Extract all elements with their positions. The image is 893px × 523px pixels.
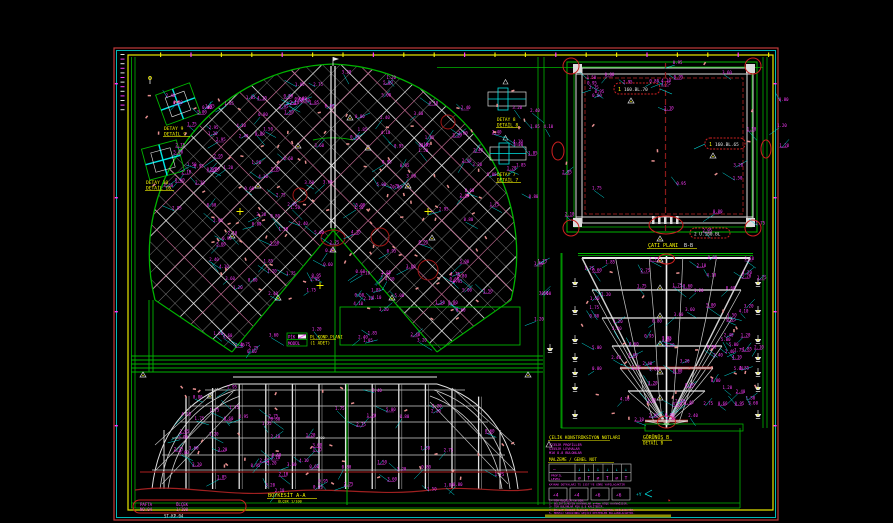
svg-text:1.85: 1.85 <box>528 150 538 155</box>
notes-heading-2: MALZEME / GENEL NOT <box>549 457 597 462</box>
svg-text:3.20: 3.20 <box>680 358 690 363</box>
svg-text:4.10: 4.10 <box>219 264 229 269</box>
svg-text:3.20: 3.20 <box>452 132 462 137</box>
svg-text:2.95: 2.95 <box>216 137 226 142</box>
svg-text:2.10: 2.10 <box>431 408 441 413</box>
svg-text:1.85: 1.85 <box>647 397 657 402</box>
svg-text:1.20: 1.20 <box>779 143 789 148</box>
svg-text:1.85: 1.85 <box>368 330 378 335</box>
svg-text:1.75: 1.75 <box>210 408 220 413</box>
svg-text:5.00: 5.00 <box>462 287 472 292</box>
svg-text:3.60: 3.60 <box>674 312 684 317</box>
section-b-line2: DETAİL B <box>643 441 664 446</box>
svg-text:1.20: 1.20 <box>741 333 751 338</box>
svg-text:1.20: 1.20 <box>223 165 233 170</box>
svg-text:0.80: 0.80 <box>173 100 183 105</box>
svg-text:1.85: 1.85 <box>309 100 319 105</box>
svg-text:3.60: 3.60 <box>216 241 226 246</box>
svg-text:1.75: 1.75 <box>537 259 547 264</box>
svg-text:1.50: 1.50 <box>746 395 756 400</box>
svg-text:1.20: 1.20 <box>722 385 732 390</box>
svg-text:1.85: 1.85 <box>742 347 752 352</box>
svg-text:2.75: 2.75 <box>356 422 366 427</box>
svg-text:0.95: 0.95 <box>207 167 217 172</box>
svg-text:5.00: 5.00 <box>377 182 387 187</box>
svg-text:3.20: 3.20 <box>417 337 427 342</box>
svg-text:2.40: 2.40 <box>380 115 390 120</box>
svg-text:↓: ↓ <box>578 468 581 473</box>
svg-text:1.75: 1.75 <box>335 406 345 411</box>
svg-text:3.60: 3.60 <box>685 307 695 312</box>
svg-text:5.00: 5.00 <box>356 202 366 207</box>
svg-text:2.95: 2.95 <box>260 458 270 463</box>
svg-text:T: T <box>606 475 609 481</box>
svg-text:1.85: 1.85 <box>530 124 540 129</box>
svg-text:1.20: 1.20 <box>209 431 219 436</box>
svg-text:5.00: 5.00 <box>734 366 744 371</box>
svg-text:1.20: 1.20 <box>367 413 377 418</box>
svg-text:3.20: 3.20 <box>397 467 407 472</box>
svg-text:1.50: 1.50 <box>587 75 597 80</box>
title-bar-strip <box>545 515 671 518</box>
svg-text:0.60: 0.60 <box>323 262 333 267</box>
svg-text:1.85: 1.85 <box>295 82 305 87</box>
svg-text:3.20: 3.20 <box>192 462 202 467</box>
svg-text:∠6: ∠6 <box>616 493 622 499</box>
svg-text:0.80: 0.80 <box>605 72 615 77</box>
svg-text:0.80: 0.80 <box>464 217 474 222</box>
svg-text:1.75: 1.75 <box>187 122 197 127</box>
svg-text:2.95: 2.95 <box>702 228 712 233</box>
svg-text:1.85: 1.85 <box>444 483 454 488</box>
svg-text:1.75: 1.75 <box>631 365 641 370</box>
svg-text:1.85: 1.85 <box>381 270 391 275</box>
svg-text:2.10: 2.10 <box>290 100 300 105</box>
svg-text:4.10: 4.10 <box>707 272 717 277</box>
svg-text:2.10: 2.10 <box>279 472 289 477</box>
svg-text:2.95: 2.95 <box>287 202 297 207</box>
svg-text:1.20: 1.20 <box>694 288 704 293</box>
svg-text:0.80: 0.80 <box>355 114 365 119</box>
svg-text:1.85: 1.85 <box>217 475 227 480</box>
svg-text:1.75: 1.75 <box>286 271 296 276</box>
svg-text:2.40: 2.40 <box>666 416 676 421</box>
detail-9-drawing: DETAY 9 DETAİL 9 <box>156 83 201 138</box>
svg-text:0.80: 0.80 <box>283 94 293 99</box>
svg-text:1.85: 1.85 <box>605 260 615 265</box>
svg-text:1.85: 1.85 <box>224 101 234 106</box>
svg-text:2.10: 2.10 <box>697 263 707 268</box>
svg-text:1.20: 1.20 <box>386 75 396 80</box>
tag-code: ST-KP-04 <box>164 514 184 519</box>
svg-text:1.85: 1.85 <box>516 162 526 167</box>
note-5: 5- MONTAJ SIRASINDA GEÇİCİ DESTEKLER KUL… <box>549 510 635 515</box>
svg-text:1.50: 1.50 <box>418 148 428 153</box>
svg-text:3.60: 3.60 <box>649 366 659 371</box>
notes-caption: KAYNAK DETAYLARI TS 3357'YE GÖRE YAPILAC… <box>549 482 625 487</box>
notes-block: ÇELİK KONSTRÜKSİYON NOTLARI S235JR PROFİ… <box>545 434 671 518</box>
svg-text:3.60: 3.60 <box>748 401 758 406</box>
svg-text:1.85: 1.85 <box>271 167 281 172</box>
svg-text:2.40: 2.40 <box>530 108 540 113</box>
svg-text:5.00: 5.00 <box>729 342 739 347</box>
svg-text:⚑: ⚑ <box>668 498 671 503</box>
svg-text:1.50: 1.50 <box>590 296 600 301</box>
svg-text:2.95: 2.95 <box>172 206 182 211</box>
svg-text:3.60: 3.60 <box>269 333 279 338</box>
svg-text:3.60: 3.60 <box>223 333 233 338</box>
svg-text:1.20: 1.20 <box>534 316 544 321</box>
svg-text:1.75: 1.75 <box>757 275 767 280</box>
cad-sheet[interactable]: PİK MODÜL PL.KONP.PLANI (1 ADET) DETAY 9… <box>0 0 893 523</box>
svg-text:5.00: 5.00 <box>706 303 716 308</box>
svg-text:2.95: 2.95 <box>239 414 249 419</box>
svg-text:5.00: 5.00 <box>173 150 183 155</box>
svg-text:3.20: 3.20 <box>733 162 743 167</box>
svg-text:1.75: 1.75 <box>262 421 272 426</box>
svg-text:2.10: 2.10 <box>195 180 205 185</box>
svg-text:1.50: 1.50 <box>284 110 294 115</box>
svg-text:2.40: 2.40 <box>713 353 723 358</box>
svg-text:0.80: 0.80 <box>421 464 431 469</box>
svg-text:3.20: 3.20 <box>612 326 622 331</box>
svg-text:1.20: 1.20 <box>208 131 218 136</box>
svg-text:3.20: 3.20 <box>648 380 658 385</box>
svg-text:1.20: 1.20 <box>507 166 517 171</box>
svg-text:2.40: 2.40 <box>358 334 368 339</box>
section-b-label: GÖRÜNÜŞ B DETAİL B <box>642 434 672 446</box>
svg-text:0.80: 0.80 <box>713 209 723 214</box>
svg-text:0.80: 0.80 <box>193 394 203 399</box>
svg-text:3.60: 3.60 <box>270 240 280 245</box>
svg-text:0.60: 0.60 <box>592 268 602 273</box>
svg-text:3.60: 3.60 <box>312 443 322 448</box>
svg-text:2.75: 2.75 <box>589 85 599 90</box>
svg-text:2.40: 2.40 <box>209 257 219 262</box>
svg-text:2.40: 2.40 <box>492 129 502 134</box>
svg-text:0.60: 0.60 <box>541 291 551 296</box>
svg-text:2.40: 2.40 <box>411 332 421 337</box>
svg-text:1.50: 1.50 <box>263 127 273 132</box>
roof-plan-rectangle: 1 160.BL.70 1 160.BL.65 2 U.160.BL ÇATI … <box>552 58 771 249</box>
svg-text:2.10: 2.10 <box>754 345 764 350</box>
svg-text:2.75: 2.75 <box>641 268 651 273</box>
svg-text:3.60: 3.60 <box>225 276 235 281</box>
svg-text:5.00: 5.00 <box>178 435 188 440</box>
svg-text:0.60: 0.60 <box>207 202 217 207</box>
svg-text:2.40: 2.40 <box>736 389 746 394</box>
svg-text:0.95: 0.95 <box>674 74 684 79</box>
svg-text:3.60: 3.60 <box>628 353 638 358</box>
svg-text:2.75: 2.75 <box>330 240 340 245</box>
svg-text:3.60: 3.60 <box>314 143 324 148</box>
svg-text:0.60: 0.60 <box>683 284 693 289</box>
svg-text:3.60: 3.60 <box>387 477 397 482</box>
svg-text:1.75: 1.75 <box>229 405 239 410</box>
svg-text:0.60: 0.60 <box>456 308 466 313</box>
svg-text:0.80: 0.80 <box>529 194 539 199</box>
svg-text:↓: ↓ <box>587 468 590 473</box>
svg-text:4.10: 4.10 <box>257 95 267 100</box>
svg-text:1.50: 1.50 <box>420 446 430 451</box>
svg-text:T: T <box>587 475 590 481</box>
svg-text:↓: ↓ <box>606 468 609 473</box>
small-marker-icon <box>149 76 152 84</box>
svg-text:0.95: 0.95 <box>382 160 392 165</box>
svg-text:⌀: ⌀ <box>615 476 618 481</box>
svg-text:1.50: 1.50 <box>435 300 445 305</box>
svg-text:0.60: 0.60 <box>629 341 639 346</box>
svg-text:1.20: 1.20 <box>601 292 611 297</box>
svg-text:4.10: 4.10 <box>353 301 363 306</box>
svg-text:1.50: 1.50 <box>733 175 743 180</box>
svg-text:2.40: 2.40 <box>688 413 698 418</box>
svg-text:2.10: 2.10 <box>228 230 238 235</box>
svg-text:0.60: 0.60 <box>283 156 293 161</box>
svg-text:2.75: 2.75 <box>175 143 185 148</box>
svg-text:0.60: 0.60 <box>708 255 718 260</box>
svg-text:0.60: 0.60 <box>244 186 254 191</box>
svg-text:3.60: 3.60 <box>323 179 333 184</box>
svg-text:0.95: 0.95 <box>387 248 397 253</box>
svg-text:3.20: 3.20 <box>256 212 266 217</box>
svg-text:0.80: 0.80 <box>589 313 599 318</box>
svg-text:0.60: 0.60 <box>726 285 736 290</box>
svg-text:1.75: 1.75 <box>661 81 671 86</box>
svg-text:0.80: 0.80 <box>673 368 683 373</box>
svg-text:1: 1 <box>709 142 712 148</box>
svg-text:↓: ↓ <box>597 468 600 473</box>
svg-text:2.75: 2.75 <box>703 401 713 406</box>
detail9-label-1: DETAY 9 <box>164 126 184 132</box>
svg-text:1.50: 1.50 <box>251 160 261 165</box>
svg-text:2.10: 2.10 <box>360 270 370 275</box>
svg-text:1.50: 1.50 <box>164 183 174 188</box>
svg-text:3.60: 3.60 <box>406 174 416 179</box>
svg-text:1.75: 1.75 <box>637 284 647 289</box>
svg-text:2.40: 2.40 <box>611 355 621 360</box>
svg-text:1.75: 1.75 <box>195 416 205 421</box>
svg-text:2.95: 2.95 <box>662 336 672 341</box>
table-row1-left: — <box>553 468 556 473</box>
svg-text:2.95: 2.95 <box>649 413 659 418</box>
tag-m2: NO:04 <box>140 507 153 512</box>
svg-text:2.10: 2.10 <box>275 488 285 493</box>
svg-text:3.60: 3.60 <box>189 445 199 450</box>
svg-text:0.60: 0.60 <box>175 178 185 183</box>
svg-text:T: T <box>625 475 628 481</box>
legend-count: (1 ADET) <box>310 341 330 346</box>
svg-text:0.80: 0.80 <box>392 185 402 190</box>
svg-text:1.75: 1.75 <box>490 202 500 207</box>
svg-text:0.80: 0.80 <box>453 482 463 487</box>
svg-text:4.10: 4.10 <box>429 100 439 105</box>
svg-text:0.95: 0.95 <box>735 401 745 406</box>
svg-text:↓: ↓ <box>615 468 618 473</box>
notes-heading-1: ÇELİK KONSTRÜKSİYON NOTLARI <box>549 434 621 441</box>
svg-text:1.50: 1.50 <box>747 126 757 131</box>
axis-label: +Y <box>636 492 642 498</box>
svg-text:2.95: 2.95 <box>279 104 289 109</box>
svg-text:1.20: 1.20 <box>312 327 322 332</box>
svg-text:4.10: 4.10 <box>372 295 382 300</box>
svg-text:4.10: 4.10 <box>351 230 361 235</box>
svg-text:2.40: 2.40 <box>643 361 653 366</box>
svg-text:2.10: 2.10 <box>634 417 644 422</box>
svg-text:0.60: 0.60 <box>485 428 495 433</box>
svg-text:4.10: 4.10 <box>419 142 429 147</box>
svg-text:0.95: 0.95 <box>726 317 736 322</box>
svg-text:1.75: 1.75 <box>589 305 599 310</box>
svg-text:4.10: 4.10 <box>732 355 742 360</box>
detail-8-drawing: DETAY 8 DETAİL 8 <box>488 80 526 129</box>
notes-m3: M16 8.8 BULONLAR <box>549 451 583 455</box>
svg-text:1.75: 1.75 <box>241 342 251 347</box>
svg-text:2.40: 2.40 <box>239 133 249 138</box>
svg-text:0.60: 0.60 <box>224 416 234 421</box>
svg-text:2.40: 2.40 <box>372 388 382 393</box>
svg-text:2.95: 2.95 <box>227 384 237 389</box>
svg-text:2.40: 2.40 <box>461 105 471 110</box>
svg-text:1.50: 1.50 <box>483 289 493 294</box>
svg-text:5.00: 5.00 <box>386 407 396 412</box>
svg-text:1.20: 1.20 <box>613 319 623 324</box>
svg-text:3.20: 3.20 <box>265 483 275 488</box>
svg-text:4.10: 4.10 <box>381 130 391 135</box>
table-row2-left2: LEVHA <box>551 477 560 481</box>
svg-text:0.60: 0.60 <box>718 401 728 406</box>
cloud-tag-2-text: 160.BL.65 <box>715 142 739 148</box>
svg-text:1.20: 1.20 <box>267 268 277 273</box>
svg-text:2.10: 2.10 <box>664 106 674 111</box>
svg-text:3.20: 3.20 <box>218 447 228 452</box>
svg-text:0.95: 0.95 <box>676 181 686 186</box>
svg-text:∠6: ∠6 <box>595 493 601 499</box>
svg-text:↓: ↓ <box>625 468 628 473</box>
svg-text:0.60: 0.60 <box>309 464 319 469</box>
svg-text:2.95: 2.95 <box>310 277 320 282</box>
fan-roof-plan: PİK MODÜL PL.KONP.PLANI (1 ADET) <box>131 57 543 372</box>
svg-text:⌀300: ⌀300 <box>316 436 325 440</box>
svg-text:4.10: 4.10 <box>258 174 268 179</box>
svg-text:0.80: 0.80 <box>649 78 659 83</box>
svg-text:1.20: 1.20 <box>777 123 787 128</box>
svg-text:2.40: 2.40 <box>166 93 176 98</box>
svg-text:1.75: 1.75 <box>649 257 659 262</box>
svg-text:0.95: 0.95 <box>350 135 360 140</box>
svg-text:2.10: 2.10 <box>271 434 281 439</box>
svg-text:2.75: 2.75 <box>313 82 323 87</box>
svg-text:0.95: 0.95 <box>400 163 410 168</box>
svg-text:0.60: 0.60 <box>465 188 475 193</box>
svg-text:5.00: 5.00 <box>487 172 497 177</box>
drawing-canvas: PİK MODÜL PL.KONP.PLANI (1 ADET) DETAY 9… <box>0 0 893 523</box>
svg-text:2.95: 2.95 <box>213 154 223 159</box>
svg-text:2.75: 2.75 <box>276 192 286 197</box>
svg-text:2.75: 2.75 <box>444 447 454 452</box>
cloud-tag-1-text: 160.BL.70 <box>624 87 648 93</box>
svg-text:0.80: 0.80 <box>448 300 458 305</box>
svg-text:3.20: 3.20 <box>472 162 482 167</box>
svg-text:0.95: 0.95 <box>394 143 404 148</box>
svg-text:1.50: 1.50 <box>427 486 437 491</box>
svg-text:2.40: 2.40 <box>473 148 483 153</box>
elevation-scale: ÖLÇEK 1/100 <box>278 499 302 504</box>
cloud-tag-2: 1 160.BL.65 <box>694 138 745 149</box>
svg-text:4.10: 4.10 <box>181 411 191 416</box>
elevation-label: BOYKESİT A-A <box>268 492 306 499</box>
svg-text:0.80: 0.80 <box>325 104 335 109</box>
legend-cell-2: MODÜL <box>288 341 301 346</box>
svg-text:2.40: 2.40 <box>268 291 278 296</box>
svg-text:3.20: 3.20 <box>342 69 352 74</box>
svg-text:3.60: 3.60 <box>414 111 424 116</box>
svg-text:0.80: 0.80 <box>779 97 789 102</box>
svg-text:1: 1 <box>618 87 621 93</box>
ground-line <box>135 488 532 493</box>
svg-text:4.10: 4.10 <box>544 124 554 129</box>
svg-text:2.75: 2.75 <box>344 481 354 486</box>
svg-text:0.80: 0.80 <box>342 464 352 469</box>
svg-text:0.80: 0.80 <box>270 214 280 219</box>
svg-text:2.95: 2.95 <box>562 169 572 174</box>
svg-text:0.60: 0.60 <box>248 277 258 282</box>
tag-m4: 1/100 <box>176 507 189 512</box>
svg-text:5.00: 5.00 <box>381 92 391 97</box>
svg-text:0.80: 0.80 <box>255 131 265 136</box>
svg-text:2.75: 2.75 <box>249 345 259 350</box>
svg-text:5.00: 5.00 <box>395 293 405 298</box>
svg-text:3.60: 3.60 <box>722 70 732 75</box>
svg-text:1.75: 1.75 <box>592 185 602 190</box>
svg-text:0.95: 0.95 <box>194 163 204 168</box>
svg-text:3.20: 3.20 <box>512 105 522 110</box>
svg-text:0.95: 0.95 <box>644 333 654 338</box>
svg-text:⌀: ⌀ <box>578 476 581 481</box>
svg-text:1.85: 1.85 <box>371 288 381 293</box>
svg-text:5.00: 5.00 <box>314 230 324 235</box>
svg-text:1.50: 1.50 <box>727 313 737 318</box>
svg-text:2.95: 2.95 <box>213 218 223 223</box>
svg-text:2.75: 2.75 <box>269 413 279 418</box>
detail7-label-1: DETAY 7 <box>497 172 516 178</box>
axis-indicator: +Y <box>636 490 652 498</box>
svg-text:5.00: 5.00 <box>592 345 602 350</box>
svg-text:2.10: 2.10 <box>182 169 192 174</box>
svg-text:2.40: 2.40 <box>684 400 694 405</box>
svg-text:2.10: 2.10 <box>565 212 575 217</box>
svg-text:1.75: 1.75 <box>755 221 765 226</box>
svg-text:0.95: 0.95 <box>313 485 323 490</box>
svg-text:3.20: 3.20 <box>379 307 389 312</box>
svg-text:0.60: 0.60 <box>450 277 460 282</box>
svg-text:0.95: 0.95 <box>325 248 335 253</box>
svg-text:3.60: 3.60 <box>406 264 416 269</box>
svg-text:⌀: ⌀ <box>597 476 600 481</box>
svg-text:1.20: 1.20 <box>233 285 243 290</box>
svg-text:4.10: 4.10 <box>739 308 749 313</box>
svg-text:0.95: 0.95 <box>318 478 328 483</box>
svg-text:0.80: 0.80 <box>711 378 721 383</box>
svg-text:0.95: 0.95 <box>418 239 428 244</box>
svg-text:1.85: 1.85 <box>246 95 256 100</box>
legend-title: PL.KONP.PLANI <box>310 335 343 340</box>
svg-text:0.95: 0.95 <box>673 60 683 65</box>
svg-text:0.95: 0.95 <box>251 463 261 468</box>
notes-table: — PROFİL LEVHA ↓↓↓↓↓↓⌀T⌀T⌀T <box>549 464 631 481</box>
svg-text:0.80: 0.80 <box>592 366 602 371</box>
svg-text:2.40: 2.40 <box>298 221 308 226</box>
